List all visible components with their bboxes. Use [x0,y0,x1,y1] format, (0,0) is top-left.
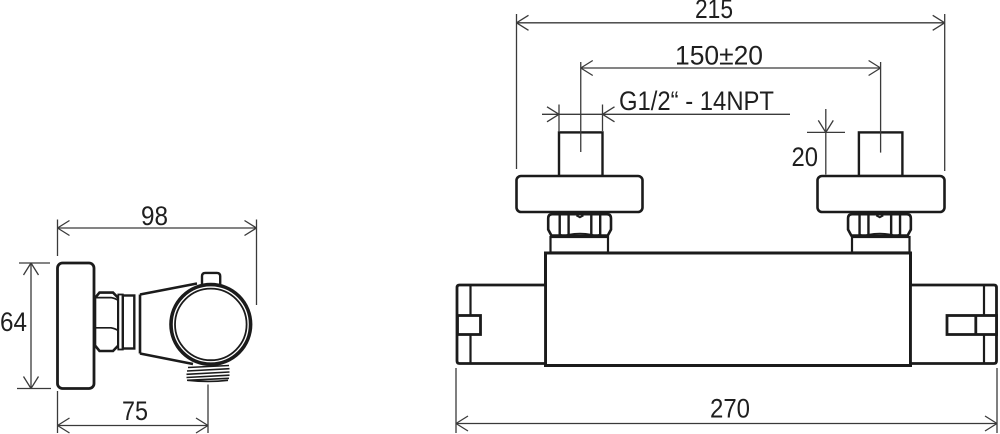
svg-text:150±20: 150±20 [675,41,763,71]
svg-text:98: 98 [141,201,168,231]
svg-text:64: 64 [0,307,27,337]
svg-text:20: 20 [792,142,819,172]
svg-text:G1/2“ - 14NPT: G1/2“ - 14NPT [619,86,774,116]
svg-text:75: 75 [122,396,148,426]
svg-text:270: 270 [710,394,750,424]
svg-text:215: 215 [695,0,733,24]
